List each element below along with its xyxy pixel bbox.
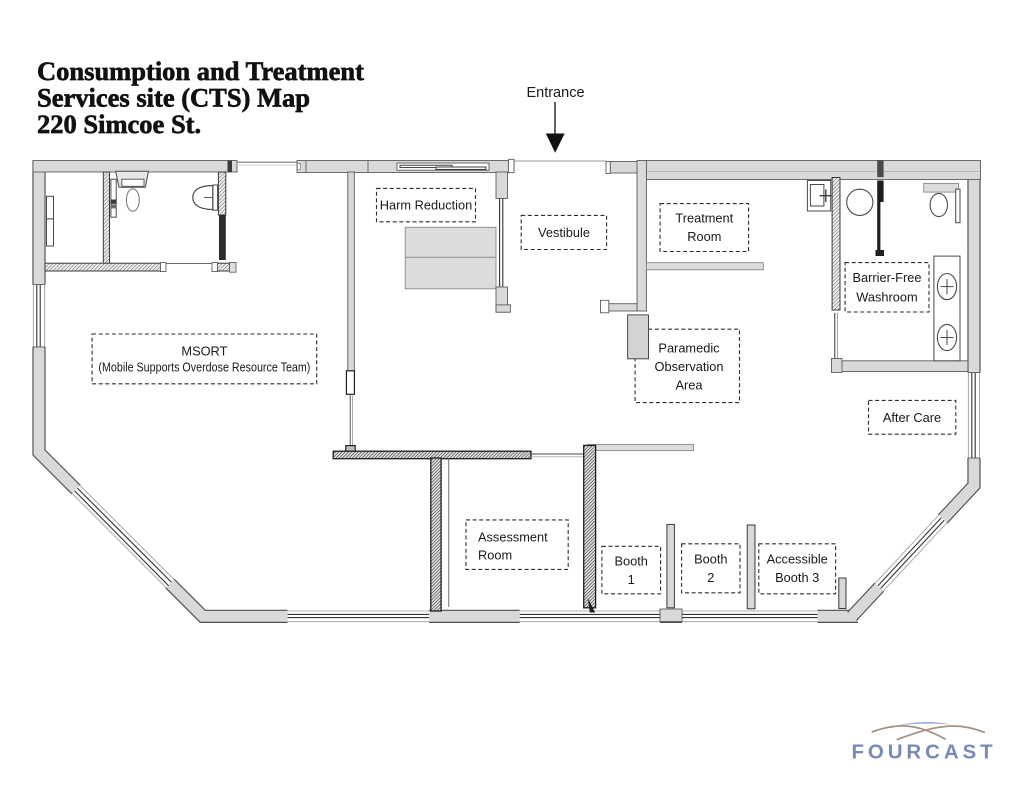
svg-text:FOURCAST: FOURCAST — [851, 741, 996, 764]
svg-text:After Care: After Care — [883, 410, 941, 425]
svg-text:Room: Room — [478, 548, 512, 563]
svg-text:Vestibule: Vestibule — [538, 225, 590, 240]
svg-text:Entrance: Entrance — [526, 85, 584, 101]
svg-text:220 Simcoe St.: 220 Simcoe St. — [37, 109, 201, 139]
svg-text:Booth: Booth — [694, 552, 727, 567]
svg-text:Harm Reduction: Harm Reduction — [380, 198, 472, 213]
svg-text:Consumption and Treatment: Consumption and Treatment — [37, 56, 364, 86]
svg-text:1: 1 — [628, 572, 635, 587]
svg-text:Washroom: Washroom — [856, 290, 917, 305]
svg-text:Services site (CTS) Map: Services site (CTS) Map — [37, 83, 310, 113]
svg-text:2: 2 — [707, 570, 714, 585]
svg-text:Booth: Booth — [614, 554, 647, 569]
svg-text:Paramedic: Paramedic — [658, 341, 720, 356]
svg-text:Area: Area — [675, 378, 703, 393]
svg-text:(Mobile Supports Overdose Reso: (Mobile Supports Overdose Resource Team) — [98, 360, 310, 375]
svg-text:Assessment: Assessment — [478, 530, 548, 545]
svg-text:Booth 3: Booth 3 — [775, 570, 819, 585]
svg-text:Accessible: Accessible — [767, 552, 828, 567]
svg-text:Treatment: Treatment — [675, 211, 733, 226]
svg-text:Barrier-Free: Barrier-Free — [853, 270, 922, 285]
svg-text:Room: Room — [687, 229, 721, 244]
svg-text:Observation: Observation — [655, 359, 724, 374]
svg-text:MSORT: MSORT — [181, 344, 227, 359]
